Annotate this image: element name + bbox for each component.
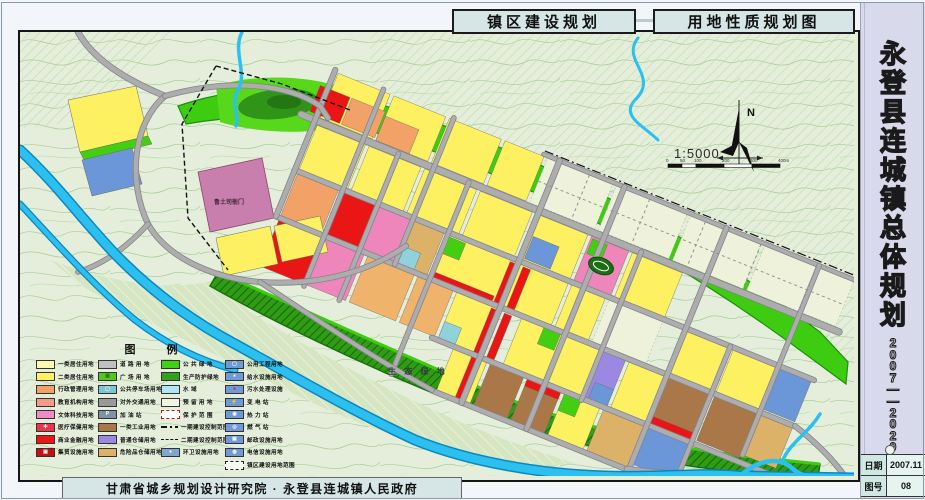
sheet-number-label: 图号: [861, 476, 887, 496]
plan-title-char: 划: [880, 301, 906, 330]
legend-item: ▣集贸设施用地: [36, 446, 94, 459]
legend-swatch: [36, 372, 55, 381]
legend-label: 热 力 站: [247, 411, 269, 419]
legend-title: 图 例: [98, 341, 218, 357]
sheet-info-table: 日期 2007.11 图号 08: [861, 454, 925, 497]
plan-title-char: 永: [880, 40, 906, 69]
legend-label: 一类工业用地: [120, 423, 156, 431]
plan-title-char: 城: [880, 156, 906, 185]
legend-swatch: [161, 436, 178, 443]
legend-label: 预 留 用 地: [183, 398, 213, 406]
title-right-text: 用地性质规划图: [687, 11, 820, 32]
legend-swatch: ⚡: [225, 398, 244, 407]
legend-label: 公用工程用地: [247, 360, 283, 368]
legend-item: ●给水设施用地: [225, 371, 295, 384]
legend-item: 水 域: [161, 383, 229, 396]
legend-swatch: [36, 385, 55, 394]
legend-label: 危险品仓储用地: [120, 448, 162, 456]
legend-item: 公 共 绿 地: [161, 358, 229, 371]
legend-swatch: [98, 435, 117, 444]
legend-swatch: ◎: [225, 423, 244, 432]
plan-title-char: 镇: [880, 185, 906, 214]
plan-title-char: 规: [880, 272, 906, 301]
date-value: 2007.11: [887, 455, 925, 475]
legend-label: 镇区建设用地范围: [247, 461, 295, 469]
legend-label: 集贸设施用地: [58, 448, 94, 456]
legend-label: 加 油 站: [120, 411, 142, 419]
legend-item: 道 路 用 地: [98, 358, 162, 371]
legend-label: 公 共 绿 地: [183, 360, 213, 368]
legend-swatch: ●: [225, 372, 244, 381]
legend-label: 广 场 用 地: [120, 373, 150, 381]
plan-title-vertical: 永登县连城镇总体规划: [861, 40, 925, 330]
legend-swatch: [161, 424, 178, 431]
title-tab-landuse-map: 用地性质规划图: [653, 9, 855, 34]
legend-label: 道 路 用 地: [120, 360, 150, 368]
legend-item: 普通仓储用地: [98, 434, 162, 447]
plan-title-char: 县: [880, 98, 906, 127]
date-label: 日期: [861, 455, 887, 475]
legend-item: 文体科技用地: [36, 408, 94, 421]
legend-column-3: 公 共 绿 地生产防护绿地水 域预 留 用 地保 护 范 围一期建设控制范围二期…: [161, 358, 229, 459]
legend-swatch: [225, 461, 244, 470]
legend-swatch: ◍: [225, 448, 244, 457]
legend-item: 一类工业用地: [98, 421, 162, 434]
legend-item: 保 护 范 围: [161, 408, 229, 421]
legend-swatch: [36, 398, 55, 407]
legend-label: 文体科技用地: [58, 411, 94, 419]
legend-swatch: [36, 410, 55, 419]
legend-item: 一类居住用地: [36, 358, 94, 371]
legend-item: 预 留 用 地: [161, 396, 229, 409]
scale-bar-label: 50: [680, 158, 686, 163]
plan-sheet: { "titles": { "left": "镇区建设规划", "right":…: [0, 0, 925, 500]
legend-item: ▢公共停车场用地: [98, 383, 162, 396]
scale-bar-label: 100: [694, 158, 702, 163]
plan-title-char: 体: [880, 243, 906, 272]
legend-item: ▦广 场 用 地: [98, 371, 162, 384]
legend-swatch: [161, 398, 180, 407]
legend-label: 二类居住用地: [58, 373, 94, 381]
scale-bar-label: 300: [750, 158, 758, 163]
legend-swatch: [36, 435, 55, 444]
credit-bar: 甘肃省城乡规划设计研究院 · 永登县连城镇人民政府: [62, 477, 462, 499]
legend-label: 公共停车场用地: [120, 385, 162, 393]
north-label: N: [747, 107, 755, 119]
legend-label: 水 域: [183, 385, 197, 393]
legend-swatch: ●: [225, 385, 244, 394]
legend-label: 对外交通用地: [120, 398, 156, 406]
legend-column-1: 一类居住用地二类居住用地行政管理用地教育机构用地文体科技用地✚医疗保健用地商业金…: [36, 358, 94, 459]
legend-swatch: P: [98, 410, 117, 419]
legend-label: 二期建设控制范围: [181, 436, 229, 444]
legend-label: 污水处理设施: [247, 385, 283, 393]
legend-label: 生产防护绿地: [183, 373, 219, 381]
legend-item: ⚡变 电 站: [225, 396, 295, 409]
legend-item: ●污水处理设施: [225, 383, 295, 396]
legend-swatch: [98, 423, 117, 432]
legend-item: P加 油 站: [98, 408, 162, 421]
legend-item: ▣邮政设施用地: [225, 434, 295, 447]
legend-item: ◉热 力 站: [225, 408, 295, 421]
sheet-number-value: 08: [887, 476, 925, 496]
legend-swatch: ▣: [36, 448, 55, 457]
legend-item: 教育机构用地: [36, 396, 94, 409]
legend-swatch: [98, 448, 117, 457]
legend-item: 对外交通用地: [98, 396, 162, 409]
legend-label: 燃 气 站: [247, 423, 269, 431]
legend-item: 二期建设控制范围: [161, 434, 229, 447]
legend-column-2: 道 路 用 地▦广 场 用 地▢公共停车场用地对外交通用地P加 油 站一类工业用…: [98, 358, 162, 459]
yamen-label: 鲁土司衙门: [214, 198, 244, 206]
legend-item: 二类居住用地: [36, 371, 94, 384]
legend-label: 环卫设施用地: [183, 448, 219, 456]
legend-item: 生产防护绿地: [161, 371, 229, 384]
legend-item: 危险品仓储用地: [98, 446, 162, 459]
legend-swatch: [98, 398, 117, 407]
legend-swatch: ▦: [98, 372, 117, 381]
plan-title-char: 总: [880, 214, 906, 243]
plan-title-char: 连: [880, 127, 906, 156]
legend-item: 一期建设控制范围: [161, 421, 229, 434]
title-sidebar: 永登县连城镇总体规划 2007——2020 日期 2007.11 图号 08: [860, 2, 925, 499]
legend-swatch: ✚: [36, 423, 55, 432]
legend-item: ✚医疗保健用地: [36, 421, 94, 434]
legend-label: 电信设施用地: [247, 448, 283, 456]
date-row: 日期 2007.11: [861, 455, 925, 476]
plan-title-char: 登: [880, 69, 906, 98]
scale-bar-label: 400m: [778, 158, 790, 163]
map-legend: 图 例 一类居住用地二类居住用地行政管理用地教育机构用地文体科技用地✚医疗保健用…: [36, 341, 336, 467]
legend-column-4: ▢公用工程用地●给水设施用地●污水处理设施⚡变 电 站◉热 力 站◎燃 气 站▣…: [225, 358, 295, 471]
legend-item: 商业金融用地: [36, 434, 94, 447]
legend-label: 普通仓储用地: [120, 436, 156, 444]
plan-period-vertical: 2007——2020: [861, 338, 925, 454]
legend-swatch: ▢: [98, 385, 117, 394]
legend-item: ●环卫设施用地: [161, 446, 229, 459]
legend-swatch: [98, 360, 117, 369]
legend-swatch: [161, 385, 180, 394]
legend-swatch: [161, 410, 180, 419]
title-tab-construction-plan: 镇区建设规划: [452, 9, 636, 34]
legend-label: 给水设施用地: [247, 373, 283, 381]
legend-label: 教育机构用地: [58, 398, 94, 406]
legend-swatch: [161, 372, 180, 381]
credit-text: 甘肃省城乡规划设计研究院 · 永登县连城镇人民政府: [106, 480, 418, 497]
legend-item: 镇区建设用地范围: [225, 459, 295, 472]
legend-label: 一类居住用地: [58, 360, 94, 368]
legend-swatch: ◉: [225, 410, 244, 419]
legend-swatch: ▣: [225, 435, 244, 444]
legend-label: 商业金融用地: [58, 436, 94, 444]
legend-item: 行政管理用地: [36, 383, 94, 396]
legend-item: ◍电信设施用地: [225, 446, 295, 459]
legend-label: 保 护 范 围: [183, 411, 213, 419]
legend-label: 医疗保健用地: [58, 423, 94, 431]
legend-label: 行政管理用地: [58, 385, 94, 393]
binding-hole-icon: [885, 445, 895, 455]
eco-green-label: 生 态 绿 地: [388, 366, 448, 376]
legend-label: 变 电 站: [247, 398, 269, 406]
legend-swatch: ●: [161, 448, 180, 457]
legend-item: ▢公用工程用地: [225, 358, 295, 371]
legend-label: 邮政设施用地: [247, 436, 283, 444]
legend-label: 一期建设控制范围: [181, 423, 229, 431]
legend-swatch: [161, 360, 180, 369]
legend-swatch: ▢: [225, 360, 244, 369]
legend-swatch: [36, 360, 55, 369]
legend-item: ◎燃 气 站: [225, 421, 295, 434]
sheet-number-row: 图号 08: [861, 476, 925, 497]
title-left-text: 镇区建设规划: [487, 11, 601, 32]
scale-bar-label: 200: [722, 158, 730, 163]
